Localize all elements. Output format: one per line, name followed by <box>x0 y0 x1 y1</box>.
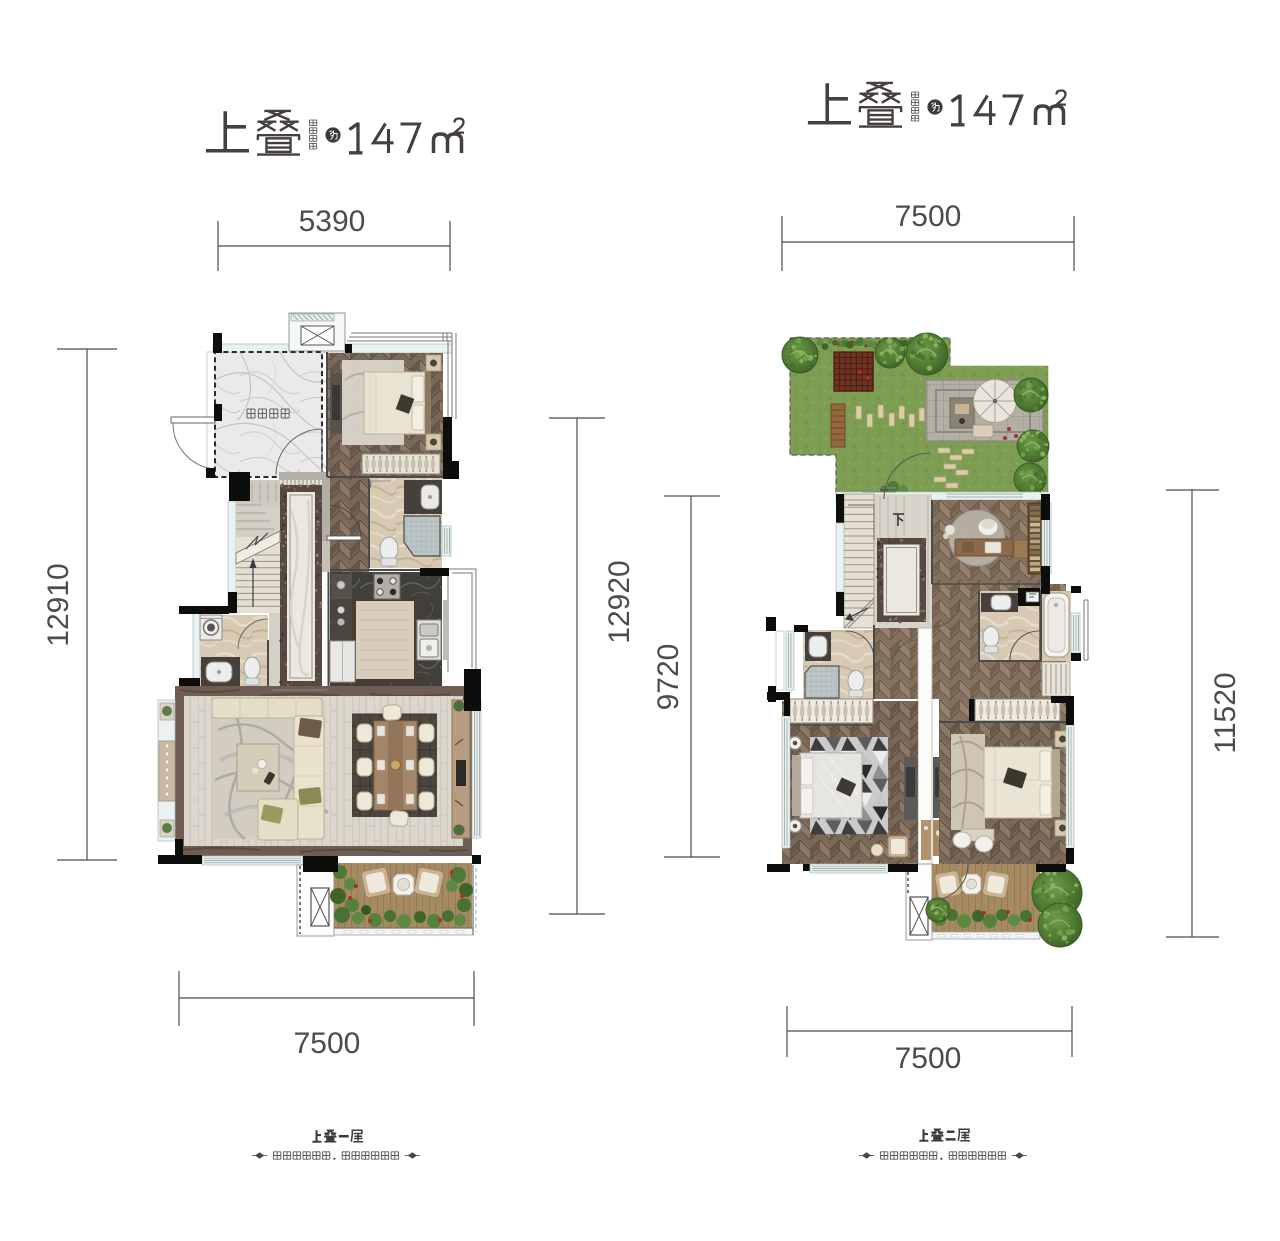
svg-text:7500: 7500 <box>895 200 962 233</box>
svg-text:9720: 9720 <box>652 644 685 711</box>
svg-text:12910: 12910 <box>42 563 75 646</box>
svg-text:7500: 7500 <box>294 1027 361 1060</box>
svg-text:5390: 5390 <box>299 205 366 238</box>
svg-text:11520: 11520 <box>1209 672 1242 753</box>
svg-text:12920: 12920 <box>603 560 636 643</box>
svg-text:7500: 7500 <box>895 1042 962 1075</box>
